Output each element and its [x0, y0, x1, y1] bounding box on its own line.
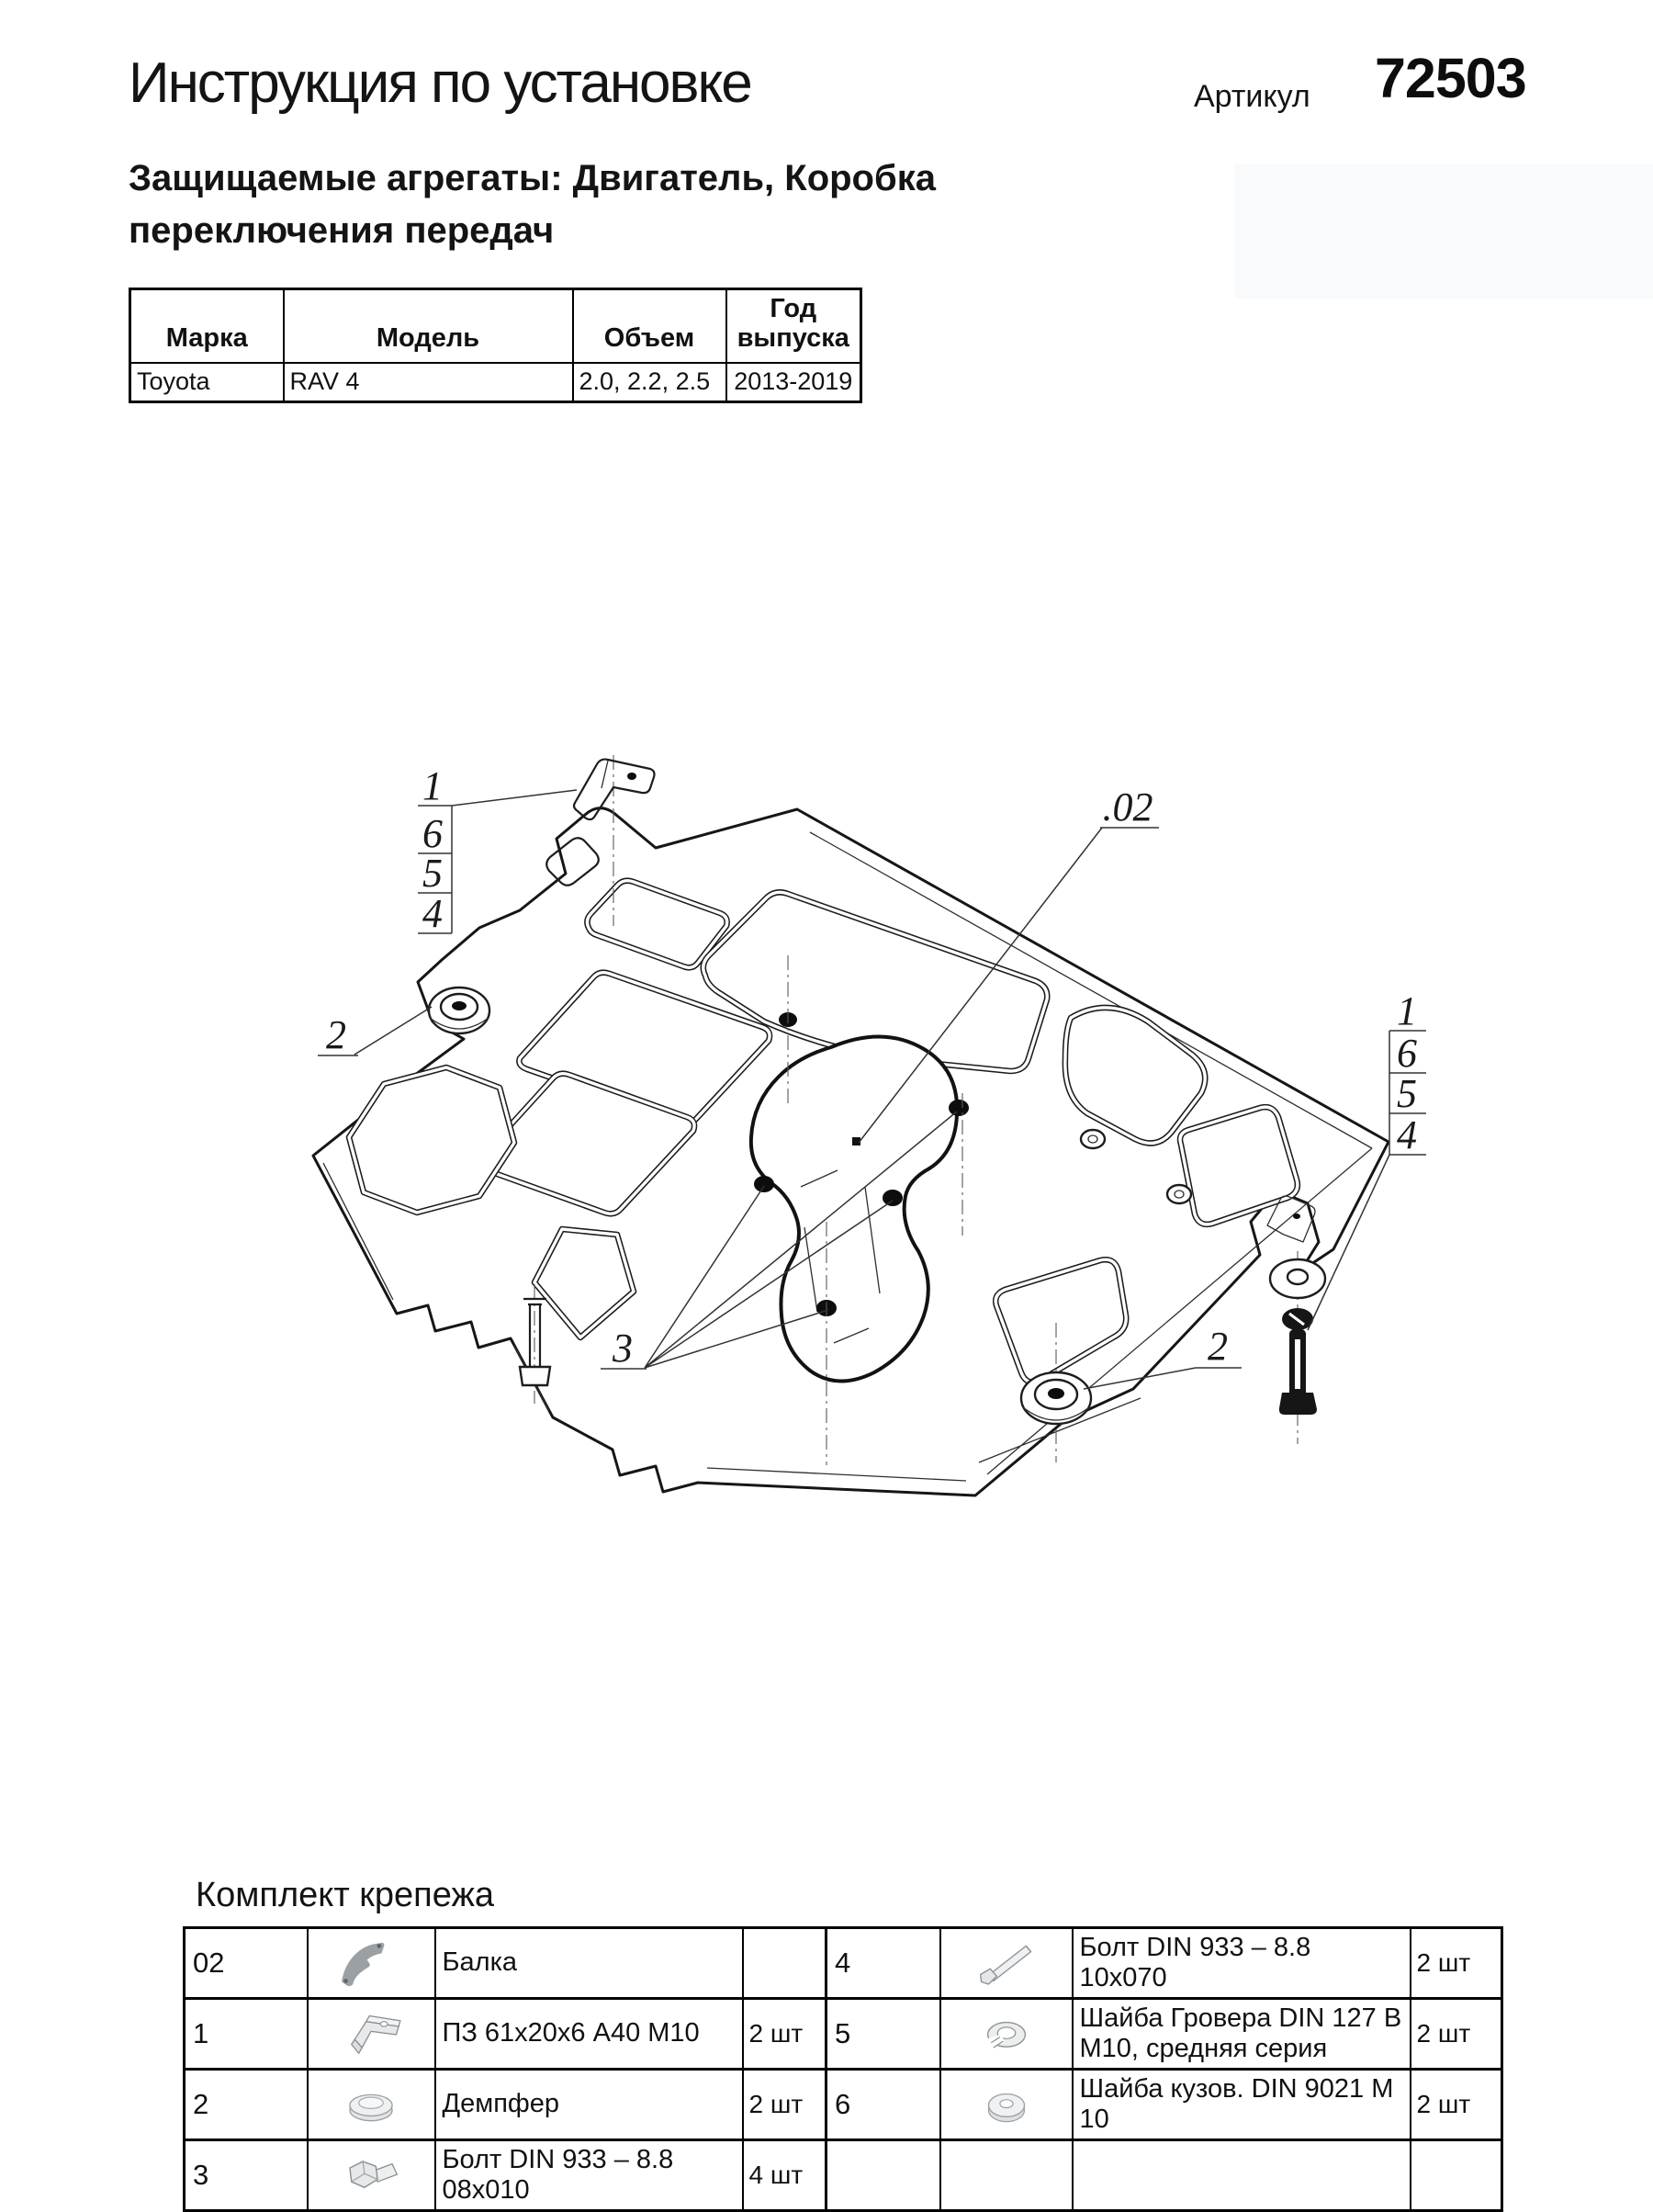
col-brand: Марка	[130, 289, 284, 363]
kit-item-qty	[1411, 2140, 1502, 2211]
kit-item-number: 02	[185, 1928, 308, 1999]
kit-row: 5 Шайба Гровера DIN 127 В М10, средняя с…	[826, 1999, 1502, 2070]
mount-bracket-top	[574, 760, 655, 820]
kit-item-qty: 2 шт	[743, 1999, 826, 2070]
kit-item-qty: 2 шт	[1411, 1999, 1502, 2070]
callout-left-6: 6	[422, 811, 443, 856]
kit-item-name: Болт DIN 933 – 8.8 10х070	[1073, 1928, 1411, 1999]
callout-damper-right: 2	[1208, 1324, 1228, 1369]
kit-item-number: 2	[185, 2070, 308, 2140]
col-volume: Объем	[573, 289, 726, 363]
installation-instruction-page: { "page": { "title": "Инструкция по уста…	[0, 0, 1653, 2205]
damper-left	[429, 987, 489, 1033]
col-year: Год выпуска	[726, 289, 861, 363]
kit-item-name	[1073, 2140, 1411, 2211]
callout-left-1: 1	[422, 763, 443, 808]
callout-right-1: 1	[1397, 988, 1417, 1033]
kit-item-qty: 2 шт	[743, 2070, 826, 2140]
vehicle-table-header-row: Марка Модель Объем Год выпуска	[130, 289, 861, 363]
hardware-stack	[1270, 1259, 1325, 1415]
callout-left-5: 5	[422, 851, 443, 896]
kit-row: 2 Демпфер 2 шт	[185, 2070, 826, 2140]
volume-value: 2.0, 2.2, 2.5	[573, 363, 726, 402]
kit-row: 4 Болт DIN 933 – 8.8 10х070 2 шт	[826, 1928, 1502, 1999]
kit-row: 02 Балка	[185, 1928, 826, 1999]
kit-item-qty	[743, 1928, 826, 1999]
bracket-plate-icon	[329, 2005, 413, 2062]
kit-item-name: ПЗ 61х20х6 А40 М10	[435, 1999, 743, 2070]
article-label: Артикул	[1194, 79, 1310, 115]
header-gray-panel	[1234, 164, 1653, 299]
callout-right-5: 5	[1397, 1071, 1417, 1116]
kit-item-qty: 2 шт	[1411, 1928, 1502, 1999]
callout-left-4: 4	[422, 891, 443, 936]
spring-washer-icon	[964, 2005, 1049, 2062]
kit-item-number: 1	[185, 1999, 308, 2070]
flat-washer-icon	[964, 2076, 1049, 2133]
kit-row: 1 ПЗ 61х20х6 А40 М10 2 шт	[185, 1999, 826, 2070]
callout-damper-left: 2	[326, 1012, 346, 1057]
page-title: Инструкция по установке	[129, 51, 751, 116]
kit-row: 3 Болт DIN 933 – 8.8 08х010 4 шт	[185, 2140, 826, 2211]
kit-item-number: 3	[185, 2140, 308, 2211]
protected-units-subtitle: Защищаемые агрегаты: Двигатель, Коробка …	[129, 152, 1139, 257]
skid-plate-drawing: 1 6 5 4 1 6 5 4 2 3 .02 2	[303, 735, 1561, 1525]
kit-item-number	[826, 2140, 940, 2211]
article-number: 72503	[1375, 46, 1526, 110]
damper-icon	[329, 2076, 413, 2133]
fastener-kit-table-left: 02 Балка 1 ПЗ 61х20х6 А40 М10 2 шт 2	[183, 1926, 827, 2212]
callout-right-6: 6	[1397, 1031, 1417, 1076]
kit-row-empty	[826, 2140, 1502, 2211]
beam-part-icon	[329, 1935, 413, 1992]
kit-item-name: Балка	[435, 1928, 743, 1999]
callout-bolts: 3	[612, 1326, 633, 1371]
kit-item-name: Демпфер	[435, 2070, 743, 2140]
callout-right-4: 4	[1397, 1112, 1417, 1157]
kit-item-number: 4	[826, 1928, 940, 1999]
year-value: 2013-2019	[726, 363, 861, 402]
vehicle-table-row: Toyota RAV 4 2.0, 2.2, 2.5 2013-2019	[130, 363, 861, 402]
kit-item-number: 5	[826, 1999, 940, 2070]
kit-item-name: Шайба кузов. DIN 9021 М 10	[1073, 2070, 1411, 2140]
brand-value: Toyota	[130, 363, 284, 402]
fastener-kit-heading: Комплект крепежа	[196, 1876, 494, 1915]
col-model: Модель	[284, 289, 573, 363]
callout-beam: .02	[1103, 784, 1153, 829]
fastener-kit-table-right: 4 Болт DIN 933 – 8.8 10х070 2 шт 5 Шайба…	[825, 1926, 1503, 2212]
long-bolt-icon	[964, 1935, 1049, 1992]
short-bolt-icon	[329, 2147, 413, 2204]
vehicle-table: Марка Модель Объем Год выпуска Toyota RA…	[129, 288, 862, 403]
kit-item-qty: 2 шт	[1411, 2070, 1502, 2140]
damper-right	[1021, 1372, 1091, 1424]
model-value: RAV 4	[284, 363, 573, 402]
kit-row: 6 Шайба кузов. DIN 9021 М 10 2 шт	[826, 2070, 1502, 2140]
kit-item-qty: 4 шт	[743, 2140, 826, 2211]
kit-item-name: Болт DIN 933 – 8.8 08х010	[435, 2140, 743, 2211]
kit-item-name: Шайба Гровера DIN 127 В М10, средняя сер…	[1073, 1999, 1411, 2070]
kit-item-number: 6	[826, 2070, 940, 2140]
